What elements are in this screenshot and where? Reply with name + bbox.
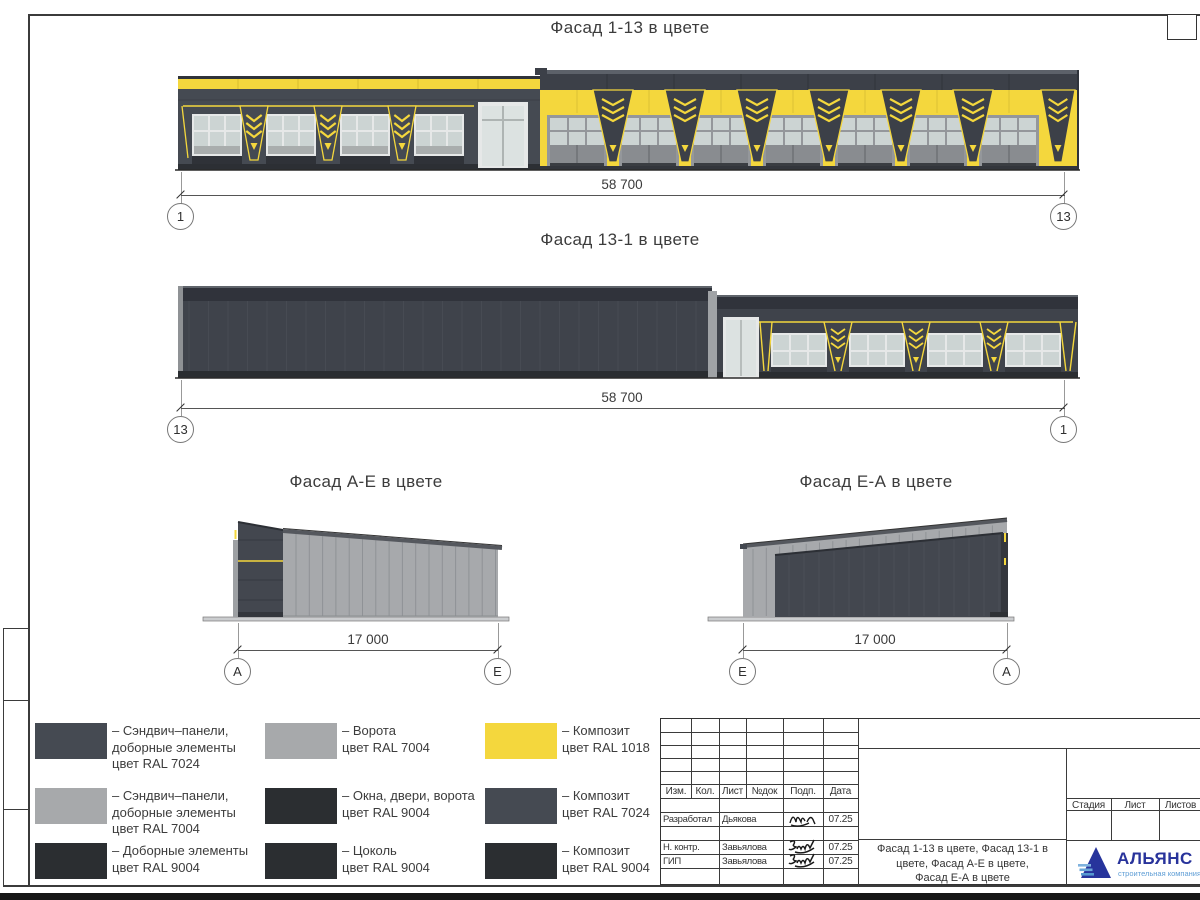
sheet-margin-divider <box>3 809 28 810</box>
sheet-border-left <box>28 14 30 885</box>
legend-label: – Композит цвет RAL 9004 <box>562 843 650 876</box>
legend-swatch <box>265 843 337 879</box>
sheet-border-top <box>28 14 1200 16</box>
signature-icon <box>786 810 820 827</box>
legend-label: – Окна, двери, ворота цвет RAL 9004 <box>342 788 475 821</box>
stamp-col-date: Дата <box>823 786 858 797</box>
legend-label: – Доборные элементы цвет RAL 9004 <box>112 843 248 876</box>
legend-swatch <box>485 788 557 824</box>
facade-ea-drawing <box>705 512 1017 624</box>
facade-ae-drawing <box>200 512 512 624</box>
extension-line <box>1064 380 1065 416</box>
axis-marker: А <box>993 658 1020 685</box>
extension-line <box>498 623 499 658</box>
legend-swatch <box>35 843 107 879</box>
axis-marker: А <box>224 658 251 685</box>
stamp-col-izm: Изм. <box>661 786 691 797</box>
stamp-role: ГИП <box>663 856 681 867</box>
company-logo: АЛЬЯНС строительная компания <box>1073 843 1200 885</box>
dimension-line <box>181 408 1065 409</box>
dimension-line <box>743 650 1007 651</box>
axis-marker: Е <box>484 658 511 685</box>
extension-line <box>181 172 182 204</box>
sheet-margin-left <box>3 628 4 885</box>
stamp-date-value: 07.25 <box>823 814 858 825</box>
facade-1-13-drawing <box>175 68 1080 172</box>
extension-line <box>1007 623 1008 658</box>
facade-ea-title: Фасад Е-А в цвете <box>726 472 1026 492</box>
legend-swatch <box>35 788 107 824</box>
axis-marker: 1 <box>167 203 194 230</box>
facade-13-1-drawing <box>175 283 1080 380</box>
facade-1-13-title: Фасад 1-13 в цвете <box>430 18 830 38</box>
legend-label: – Сэндвич–панели, доборные элементы цвет… <box>112 788 236 838</box>
signature-icon <box>786 852 820 869</box>
stamp-col-doc: №док <box>746 786 783 797</box>
extension-line <box>1064 172 1065 204</box>
legend-swatch <box>265 788 337 824</box>
dimension-label: 17 000 <box>268 632 468 647</box>
axis-marker: 13 <box>167 416 194 443</box>
stamp-col-kol: Кол. <box>691 786 719 797</box>
title-block: Изм. Кол. Лист №док Подп. Дата Разработа… <box>660 718 1200 885</box>
stamp-date-value: 07.25 <box>823 856 858 867</box>
stamp-name: Завьялова <box>722 842 767 853</box>
company-subtitle: строительная компания <box>1118 869 1200 878</box>
company-name: АЛЬЯНС <box>1117 849 1193 869</box>
stamp-name: Завьялова <box>722 856 767 867</box>
legend-label: – Композит цвет RAL 7024 <box>562 788 650 821</box>
stamp-doc-title: Фасад 1-13 в цвете, Фасад 13-1 в цвете, … <box>860 842 1065 886</box>
stamp-role: Разработал <box>663 814 712 825</box>
stamp-col-sheets: Листов <box>1159 800 1200 811</box>
facade-13-1-title: Фасад 13-1 в цвете <box>420 230 820 250</box>
alliance-pyramid-icon <box>1077 845 1113 881</box>
screen-bottom-bar <box>0 893 1200 900</box>
legend-swatch <box>265 723 337 759</box>
dimension-label: 58 700 <box>522 390 722 405</box>
legend-swatch <box>485 723 557 759</box>
legend-swatch <box>35 723 107 759</box>
dimension-line <box>181 195 1065 196</box>
legend-label: – Ворота цвет RAL 7004 <box>342 723 430 756</box>
extension-line <box>238 623 239 658</box>
stamp-date-value: 07.25 <box>823 842 858 853</box>
stamp-col-list: Лист <box>719 786 746 797</box>
stamp-role: Н. контр. <box>663 842 700 853</box>
axis-marker: 13 <box>1050 203 1077 230</box>
sheet-corner-box <box>1167 14 1197 40</box>
dimension-line <box>238 650 498 651</box>
dimension-label: 17 000 <box>775 632 975 647</box>
sheet-margin-divider <box>3 628 28 629</box>
axis-marker: 1 <box>1050 416 1077 443</box>
legend-label: – Цоколь цвет RAL 9004 <box>342 843 430 876</box>
legend-label: – Композит цвет RAL 1018 <box>562 723 650 756</box>
stamp-col-stage: Стадия <box>1066 800 1111 811</box>
stamp-col-sheet: Лист <box>1111 800 1159 811</box>
legend-swatch <box>485 843 557 879</box>
extension-line <box>743 623 744 658</box>
axis-marker: Е <box>729 658 756 685</box>
drawing-sheet: Фасад 1-13 в цвете Фасад 13-1 в цвете Фа… <box>0 0 1200 900</box>
facade-ae-title: Фасад А-Е в цвете <box>216 472 516 492</box>
sheet-margin-divider <box>3 700 28 701</box>
stamp-name: Дьякова <box>722 814 756 825</box>
extension-line <box>181 380 182 416</box>
stamp-col-sign: Подп. <box>783 786 823 797</box>
dimension-label: 58 700 <box>522 177 722 192</box>
legend-label: – Сэндвич–панели, доборные элементы цвет… <box>112 723 236 773</box>
